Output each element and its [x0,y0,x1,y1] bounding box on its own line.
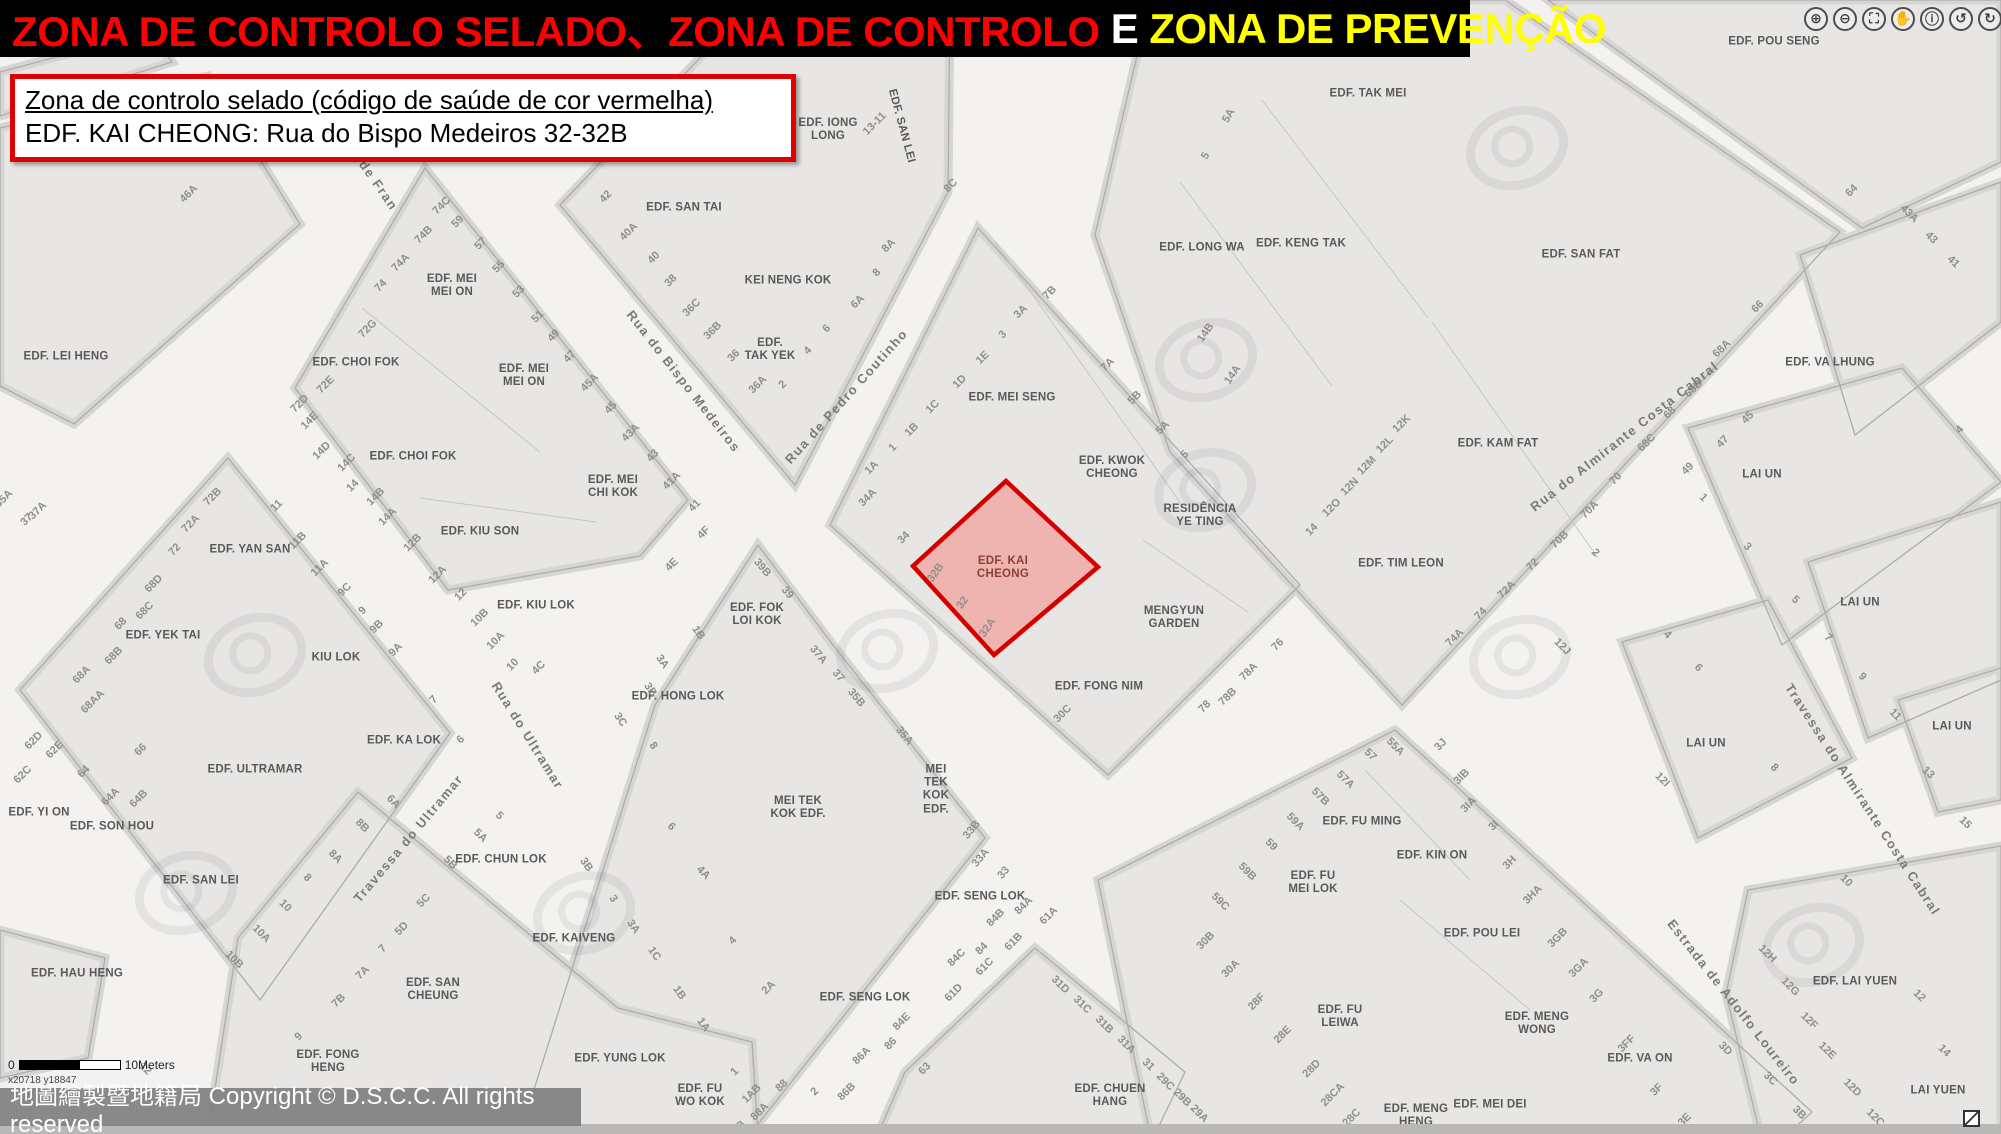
legend-line-address: EDF. KAI CHEONG: Rua do Bispo Medeiros 3… [25,118,779,149]
full-extent-button[interactable]: ⛶ [1862,7,1886,31]
legend-info-box: Zona de controlo selado (código de saúde… [10,74,796,162]
banner-text-segment: ZONA DE CONTROLO SELADO、ZONA DE CONTROLO [12,0,1111,59]
title-banner: ZONA DE CONTROLO SELADO、ZONA DE CONTROLO… [0,0,1470,57]
pan-button[interactable]: ✋ [1891,7,1915,31]
scale-zero-label: 0 [8,1058,15,1072]
banner-text-segment: ZONA DE PREVENÇÃO [1149,5,1606,53]
zoom-out-button[interactable]: ⊖ [1833,7,1857,31]
city-block-outline [1726,846,2001,1134]
banner-text-segment: E [1111,5,1150,53]
city-block-outline [0,930,105,1078]
copyright-bar: 地圖繪製暨地籍局 Copyright © D.S.C.C. All rights… [0,1088,581,1126]
resize-handle-icon[interactable] [1963,1110,1980,1127]
map-toolbar: ⊕⊖⛶✋ⓘ↺↻ [1804,7,2001,31]
zoom-in-button[interactable]: ⊕ [1804,7,1828,31]
scale-distance-label: 10Meters [125,1058,175,1072]
copyright-text: 地圖繪製暨地籍局 Copyright © D.S.C.C. All rights… [10,1076,581,1134]
city-block-outline [1622,600,1852,838]
legend-line-zone: Zona de controlo selado (código de saúde… [25,85,779,116]
identify-button[interactable]: ⓘ [1920,7,1944,31]
scale-bar-graphic [19,1060,121,1070]
map-viewport[interactable]: EDF. LEI HENGEDF. SAN TAIEDF. IONG LONGE… [0,0,2001,1134]
map-application: EDF. LEI HENGEDF. SAN TAIEDF. IONG LONGE… [0,0,2001,1134]
previous-extent-button[interactable]: ↺ [1949,7,1973,31]
city-blocks-layer [0,0,2001,1134]
next-extent-button[interactable]: ↻ [1978,7,2001,31]
